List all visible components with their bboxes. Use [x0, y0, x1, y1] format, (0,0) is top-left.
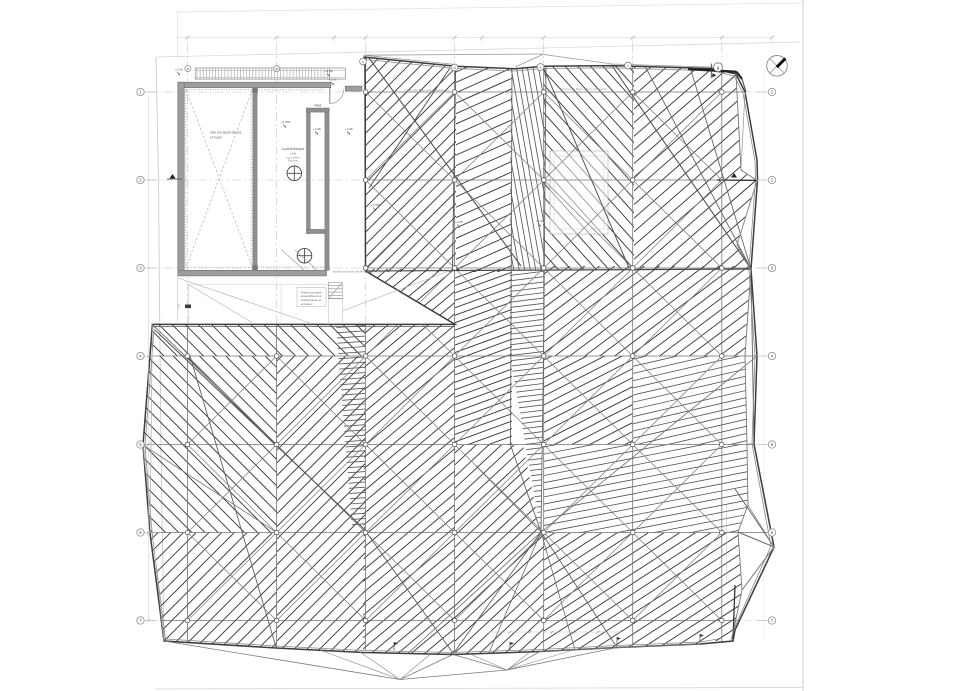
svg-text:e: e [540, 65, 542, 69]
svg-text:Local technique: Local technique [281, 147, 304, 151]
svg-text:+1.06: +1.06 [329, 78, 337, 82]
svg-text:PM05: PM05 [315, 104, 322, 108]
svg-text:f: f [628, 64, 629, 68]
svg-text:g: g [717, 65, 720, 70]
svg-text:+1.08: +1.08 [325, 69, 333, 73]
svg-text:entretien: entretien [301, 302, 313, 306]
svg-text:vide sur dépôt décors: vide sur dépôt décors [210, 131, 242, 135]
svg-text:d: d [454, 66, 456, 70]
svg-text:+1.08: +1.08 [313, 127, 321, 131]
svg-text:Plancher: Plancher [288, 158, 298, 162]
svg-text:Tuiles tôle Bajo relieve anthr: Tuiles tôle Bajo relieve anthracite [404, 88, 450, 92]
svg-text:+1.50: +1.50 [175, 68, 183, 72]
svg-text:c: c [362, 60, 364, 64]
svg-text:+1.08: +1.08 [345, 127, 353, 131]
svg-text:Toiture tôle Bajo relieve anth: Toiture tôle Bajo relieve anthracite [560, 87, 607, 91]
svg-text:et Foyer: et Foyer [210, 136, 223, 140]
svg-text:1:50: 1:50 [177, 303, 181, 309]
svg-text:+1.08: +1.08 [455, 220, 463, 224]
svg-text:+1%: +1% [290, 152, 296, 156]
svg-text:+1.565: +1.565 [281, 120, 291, 124]
svg-text:+1.565: +1.565 [371, 203, 381, 207]
svg-text:+1.08: +1.08 [536, 219, 544, 223]
svg-text:accès sur toiture technique pa: accès sur toiture technique par échelle [333, 270, 385, 274]
